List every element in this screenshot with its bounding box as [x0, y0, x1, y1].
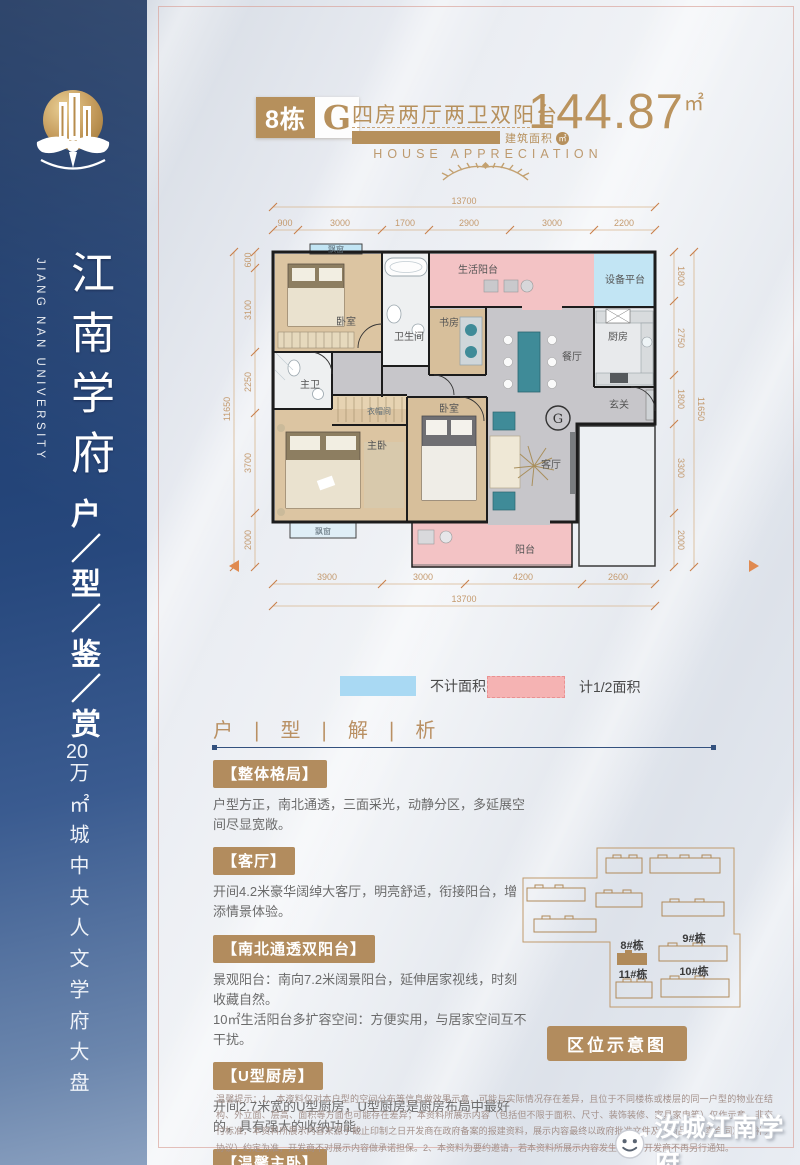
- dim-label: 2600: [608, 572, 628, 582]
- footer-brand-text: 汝城江南学府: [654, 1108, 800, 1165]
- area-unit: ㎡: [684, 93, 705, 115]
- subtitle-en: HOUSE APPRECIATION: [348, 147, 628, 161]
- section-body: 开间4.2米豪华阔绰大客厅，明亮舒适，衔接阳台，增添情景体验。: [213, 882, 529, 922]
- section-badge: 【南北通透双阳台】: [213, 935, 375, 963]
- brand-name-cn: 江南学府: [56, 250, 120, 490]
- tagline-text: 万㎡城中央人文学府大盘: [66, 762, 88, 1103]
- dim-right-total: 11650: [696, 397, 706, 421]
- room-label-kitchen: 厨房: [608, 330, 628, 343]
- dim-label: 1800: [676, 389, 686, 409]
- laurel-icon: [438, 161, 533, 185]
- legend-label-half-area: 计1/2面积: [579, 677, 640, 697]
- area-gold-bar: [352, 131, 500, 144]
- brand-name-en: JIANG NAN UNIVERSITY: [34, 258, 46, 518]
- tagline-vertical: 20万㎡城中央人文学府大盘: [63, 742, 92, 1103]
- section-badge: 【整体格局】: [213, 760, 327, 788]
- room-label-bath1: 卫生间: [394, 330, 424, 343]
- analysis-title: 户 | 型 | 解 | 析: [213, 714, 442, 743]
- flyer-page: JIANG NAN UNIVERSITY 江南学府 户／型／鉴／赏 20万㎡城中…: [0, 0, 800, 1165]
- room-label-entry: 玄关: [609, 398, 629, 411]
- analysis-section: 【客厅】 开间4.2米豪华阔绰大客厅，明亮舒适，衔接阳台，增添情景体验。: [213, 847, 529, 922]
- section-badge: 【客厅】: [213, 847, 295, 875]
- dim-top-total: 13700: [451, 196, 476, 206]
- area-number: 144.87: [528, 85, 684, 139]
- dim-label: 3100: [243, 300, 253, 320]
- analysis-section: 【南北通透双阳台】 景观阳台：南向7.2米阔景阳台，延伸居家视线，时刻收藏自然。…: [213, 935, 529, 1051]
- dim-label: 3900: [317, 572, 337, 582]
- building-label-8: 8#栋: [620, 938, 643, 952]
- dim-label: 3300: [676, 458, 686, 478]
- legend-swatch-blue: [340, 676, 416, 696]
- building-label-10: 10#栋: [679, 964, 708, 978]
- analysis-rule: [213, 747, 715, 748]
- dim-label: 2900: [459, 218, 479, 228]
- area-value: 144.87㎡: [528, 84, 705, 140]
- building-label-9: 9#栋: [682, 931, 705, 945]
- dim-bottom-total: 13700: [451, 594, 476, 604]
- location-caption: 区位示意图: [547, 1026, 687, 1061]
- dim-label: 4200: [513, 572, 533, 582]
- room-label-bed1: 卧室: [336, 315, 356, 328]
- room-label-bay-top: 飘窗: [328, 244, 344, 254]
- svg-text:G: G: [553, 412, 563, 427]
- location-map: 8#栋 9#栋 11#栋 10#栋: [505, 845, 770, 1020]
- legend-no-area: 不计面积: [340, 676, 486, 696]
- dim-label: 3000: [542, 218, 562, 228]
- dim-label: 3000: [330, 218, 350, 228]
- building-label-11: 11#栋: [619, 967, 648, 981]
- dim-label: 1800: [676, 266, 686, 286]
- block-badge: 8栋: [256, 97, 315, 138]
- dim-label: 2750: [676, 328, 686, 348]
- room-label-cloak: 衣帽间: [367, 406, 391, 416]
- slogan-vertical: 户／型／鉴／赏: [60, 498, 104, 743]
- dim-label: 3700: [243, 453, 253, 473]
- dim-label: 900: [277, 218, 292, 228]
- dim-label: 2000: [676, 530, 686, 550]
- dim-label: 2250: [243, 372, 253, 392]
- legend-label-no-area: 不计面积: [430, 676, 486, 696]
- smiley-logo-icon: [612, 1125, 647, 1163]
- room-label-balcony: 阳台: [515, 543, 535, 556]
- room-label-dining: 餐厅: [562, 350, 582, 363]
- room-label-bed2: 卧室: [439, 402, 459, 415]
- section-body: 景观阳台：南向7.2米阔景阳台，延伸居家视线，时刻收藏自然。 10㎡生活阳台多扩…: [213, 970, 529, 1051]
- dim-label: 3000: [413, 572, 433, 582]
- dim-label: 600: [243, 252, 253, 267]
- section-body: 户型方正，南北通透，三面采光，动静分区，多延展空间尽显宽敞。: [213, 795, 529, 835]
- dim-label: 1700: [395, 218, 415, 228]
- room-label-life-balcony: 生活阳台: [458, 263, 498, 276]
- floorplan: 飘窗 卧室 卫生间 书房 生活阳台 设备平台 厨房 餐厅 玄关 主卫 衣帽间 主…: [222, 192, 782, 654]
- unit-badge-group: 8栋 G: [256, 97, 359, 138]
- legend-swatch-pink: [487, 676, 565, 698]
- room-label-master-bed: 主卧: [367, 439, 387, 452]
- building-8-highlight: [617, 953, 647, 965]
- dim-label: 2000: [243, 530, 253, 550]
- brand-logo-icon: [33, 84, 113, 184]
- room-label-master-bath: 主卫: [300, 379, 320, 391]
- tagline-number: 20: [66, 742, 88, 762]
- room-label-bay-bottom: 飘窗: [315, 526, 331, 536]
- legend-half-area: 计1/2面积: [487, 676, 640, 698]
- sidebar: JIANG NAN UNIVERSITY 江南学府 户／型／鉴／赏 20万㎡城中…: [0, 0, 147, 1165]
- dim-left-total: 11650: [222, 397, 232, 421]
- footer-brand-mark: 汝城江南学府: [612, 1108, 800, 1165]
- room-label-living: 客厅: [541, 458, 561, 471]
- dim-label: 2200: [614, 218, 634, 228]
- type-underline: [352, 127, 535, 128]
- analysis-section: 【整体格局】 户型方正，南北通透，三面采光，动静分区，多延展空间尽显宽敞。: [213, 760, 529, 835]
- section-badge: 【U型厨房】: [213, 1062, 323, 1090]
- room-label-study: 书房: [439, 316, 459, 329]
- room-label-equip: 设备平台: [605, 273, 645, 286]
